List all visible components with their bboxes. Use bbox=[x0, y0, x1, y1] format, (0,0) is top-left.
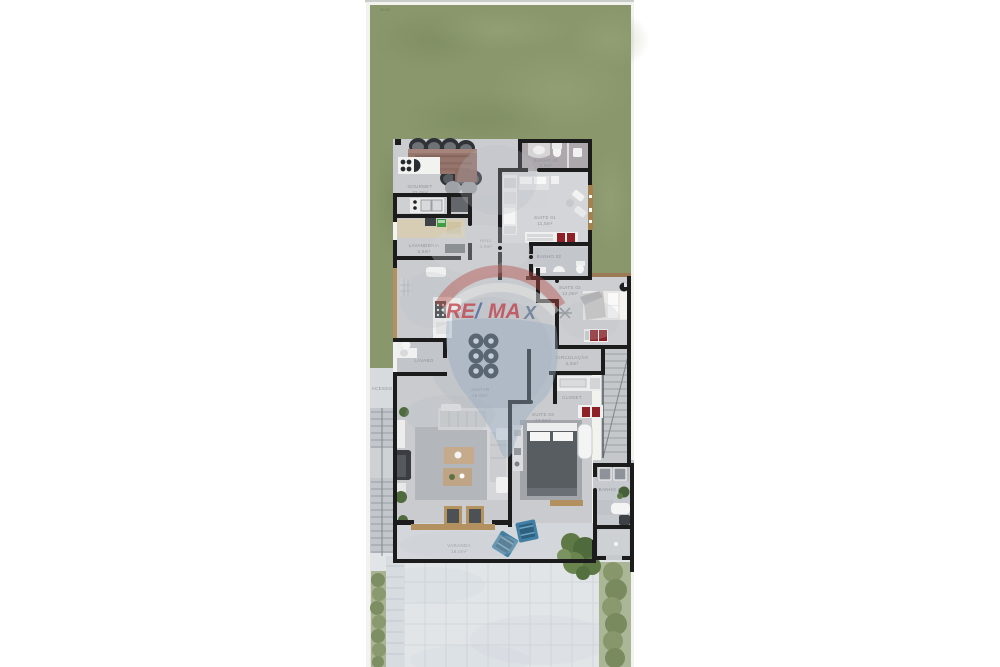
svg-text:11,5m²: 11,5m² bbox=[537, 221, 553, 226]
svg-text:SUITE 03: SUITE 03 bbox=[532, 412, 554, 417]
svg-text:SUITE 02: SUITE 02 bbox=[559, 285, 581, 290]
svg-text:LAVABO: LAVABO bbox=[414, 358, 433, 363]
svg-text:RE: RE bbox=[446, 300, 476, 323]
svg-text:17,5m²: 17,5m² bbox=[535, 418, 551, 423]
svg-text:5,5m²: 5,5m² bbox=[417, 249, 430, 254]
svg-text:CLOSET: CLOSET bbox=[562, 395, 582, 400]
svg-text:10.00: 10.00 bbox=[380, 7, 391, 12]
svg-text:12,0m²: 12,0m² bbox=[562, 291, 578, 296]
svg-text:MA: MA bbox=[488, 300, 521, 323]
svg-text:ACESSO: ACESSO bbox=[372, 386, 393, 391]
svg-text:X: X bbox=[523, 303, 537, 323]
svg-text:SUITE 01: SUITE 01 bbox=[534, 215, 556, 220]
svg-text:3,0m²: 3,0m² bbox=[565, 361, 578, 366]
svg-text:3,5m²: 3,5m² bbox=[539, 163, 552, 168]
svg-text:CIRCULAÇÃO: CIRCULAÇÃO bbox=[556, 354, 589, 360]
svg-text:GOURMET: GOURMET bbox=[407, 184, 432, 189]
svg-text:BANHO 02: BANHO 02 bbox=[537, 254, 562, 259]
